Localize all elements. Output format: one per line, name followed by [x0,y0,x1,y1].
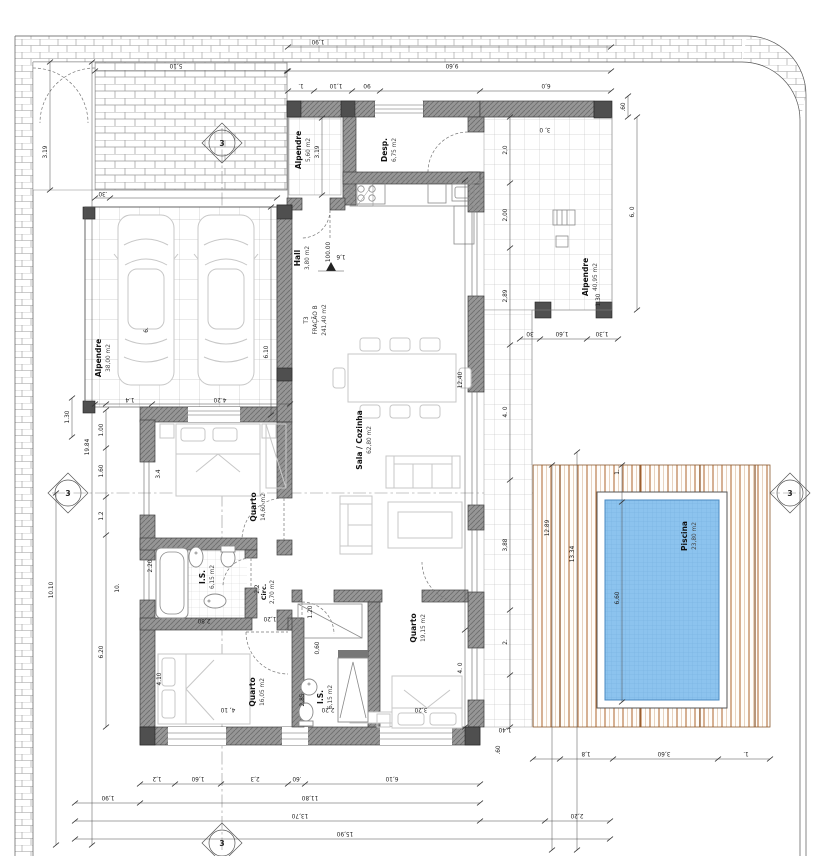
toilet-is1 [221,546,235,567]
dim-bottom-row1: 1,2 1,60 2,3 .60 6,10 [137,775,483,786]
carport-area: 38,00 m2 [106,344,112,372]
dim-bottom-row2: 1,90 11,80 [72,794,483,805]
dim-is2-120: 1.20 [308,605,314,618]
svg-text:90: 90 [363,82,371,88]
dim-is2-220: 2,20 [321,706,334,712]
desp-door-arc-east [428,132,468,172]
carport-name: Alpendre [94,339,103,377]
washbasin-is2 [301,679,317,695]
section-marker-left: 3 [65,489,70,498]
dim-alp40-right: 6, 0 [630,115,640,313]
dim-sala-height: 12,40 4. 0 [458,178,468,730]
dim-p-140: 1,40 [498,726,511,732]
dim-q3-320: 3,20 [414,706,427,712]
svg-text:6,0: 6,0 [541,82,551,88]
dim-alp40-130: 1,30 [596,293,602,306]
backporch-name: Alpendre [581,258,590,296]
svg-text:10.10: 10.10 [49,581,55,598]
bed-quarto2 [158,654,250,724]
front-door-arc [302,210,330,238]
svg-text:6,10: 6,10 [385,775,398,781]
sala-area: 62,80 m2 [367,426,373,454]
svg-text:1,60: 1,60 [555,330,568,336]
bidet-is1 [204,594,226,608]
level-value: 100.00 [326,242,332,263]
quarto2-door-arc [246,632,288,674]
svg-text:4. 0: 4. 0 [503,406,509,417]
svg-text:19.84: 19.84 [85,438,91,455]
quarto1-area: 14,60 m2 [261,493,267,521]
pool-area: 23,80 m2 [692,522,698,550]
svg-text:1.2: 1.2 [99,511,105,521]
washbasin-is1 [189,547,203,567]
svg-text:2,3: 2,3 [250,775,260,781]
dim-is2-060: 0,60 [315,641,321,654]
is2-name: I.S. [316,690,325,704]
pool-deck: Piscina 23,80 m2 [533,465,770,727]
unit-line1: T3 [304,316,310,325]
dim-hall-16: 1,6 [336,253,346,259]
svg-text:1,10: 1,10 [329,82,342,88]
sofa-large [386,456,460,488]
svg-text:1,60: 1,60 [191,775,204,781]
window-top [375,101,423,117]
dim-c-22: 2,2 [255,584,261,594]
window-carport-wall [188,407,240,422]
svg-text:1,30: 1,30 [595,330,608,336]
hall-area: 3,80 m2 [305,246,311,270]
svg-text:2.: 2. [503,639,509,645]
svg-text:1,90: 1,90 [311,38,324,44]
dim-bottom-row4: 15,90 [72,830,613,841]
quarto2-area: 16,05 m2 [260,678,266,706]
svg-text:15,90: 15,90 [336,830,353,836]
quarto1-name: Quarto [249,492,258,521]
svg-text:11,80: 11,80 [301,794,318,800]
svg-text:1.60: 1.60 [99,464,105,477]
dim-q1-34: 3.4 [156,469,162,479]
svg-text:2,0: 2,0 [503,145,509,155]
hall-name: Hall [293,250,302,266]
section-marker-right: 3 [787,489,792,498]
bed-quarto1 [160,424,276,496]
driveway [33,62,95,190]
sidewalk-corner [742,36,806,120]
dim-is2-285: 2,85 [300,693,306,706]
svg-text:3.19: 3.19 [315,145,321,158]
is2-area: 6,15 m2 [328,685,334,709]
sofa-small [340,496,372,554]
svg-text:9,60: 9,60 [445,62,458,68]
pool-name: Piscina [680,521,689,551]
bed-quarto3 [377,676,462,728]
svg-text:2,89: 2,89 [503,289,509,302]
svg-text:3.19: 3.19 [43,145,49,158]
dim-is1-220: 2.20 [148,559,154,572]
dim-bottom-row3: 13,70 2,20 [72,812,613,823]
dim-left-10: 10. [115,583,121,592]
svg-text:.30: .30 [98,190,108,196]
car-1 [114,215,178,385]
svg-text:1.: 1. [615,469,621,475]
desp-area: 6,75 m2 [392,138,398,162]
svg-text:12,40: 12,40 [458,371,464,388]
unit-line3: 241,40 m2 [322,304,328,336]
svg-text:.60: .60 [292,775,302,781]
kitchen [350,180,480,244]
porch-name: Alpendre [294,131,303,169]
unit-line2: FRAÇÃO B [312,305,319,334]
svg-text:3,88: 3,88 [503,538,509,551]
floor-plan-drawing: Piscina 23,80 m2 [0,0,816,856]
svg-text:1,8: 1,8 [581,750,591,756]
section-marker-bottom: 3 [219,839,224,848]
window-west-1 [144,462,149,515]
svg-text:1,90: 1,90 [101,794,114,800]
dim-alp40-col: .60 [621,94,631,120]
rug [388,502,462,548]
dining-set [333,338,471,418]
svg-text:1.00: 1.00 [99,423,105,436]
porch-area: 5,60 m2 [306,138,312,162]
window-q2 [168,727,226,745]
svg-text:4. 0: 4. 0 [458,662,464,673]
dim-porch-row: 30 1,60 1,30 [517,330,621,341]
dim-carport-top: .30 [92,190,280,200]
dim-top-total: 9,60 [285,62,614,73]
dim-alp40-inner: 3, 0 [539,126,550,132]
svg-text:13.34: 13.34 [570,545,576,562]
backporch-area: 40,95 m2 [593,263,599,291]
svg-text:6, 0: 6, 0 [630,206,636,217]
dim-top-segments: 1. 1,10 90 6,0 [285,82,614,93]
window-is [282,727,308,745]
is2-door-arc [302,602,334,634]
svg-text:5,10: 5,10 [169,62,182,68]
is1-name: I.S. [198,570,207,584]
dim-p-60: .60 [496,745,502,755]
svg-text:30: 30 [526,330,534,336]
svg-text:1.: 1. [298,82,304,88]
is1-area: 6,15 m2 [210,565,216,589]
window-q3 [380,727,452,745]
svg-text:6.10: 6.10 [264,345,270,358]
sala-name: Sala / Cozinha [355,410,364,469]
quarto3-name: Quarto [409,613,418,642]
dim-q2-410v: 4.10 [157,672,163,685]
car-2 [194,215,258,385]
svg-text:1.30: 1.30 [65,410,71,423]
circ-name: Circ. [260,584,268,601]
quarto3-area: 19,15 m2 [421,614,427,642]
shower-is2 [338,650,368,722]
paved-forecourt [95,62,287,190]
desp-name: Desp. [380,138,389,162]
dim-left-130: 1.30 [65,396,75,440]
dim-left-1010: 10.10 [49,491,59,848]
dim-q2-410h: 4, 10 [220,706,235,712]
svg-text:3,60: 3,60 [657,750,670,756]
floor-plan-page: Piscina 23,80 m2 [0,0,816,856]
side-walkway-tiles [484,310,532,727]
svg-text:.60: .60 [621,102,627,112]
section-marker-top: 3 [219,139,224,148]
sidewalk-left [15,62,33,856]
svg-text:2,00: 2,00 [503,208,509,221]
dim-q2-280: 2,80 [197,617,210,623]
svg-text:2,20: 2,20 [570,812,583,818]
circ-area: 2,70 m2 [270,580,276,604]
svg-text:1.4: 1.4 [125,396,135,402]
bathtub [156,548,188,618]
dim-deck-bottom: 1,8 3,60 1. [530,750,773,761]
svg-text:1.: 1. [743,750,749,756]
sidewalk-top [15,36,742,62]
dim-left-6: 6. [144,327,150,333]
svg-text:4.20: 4.20 [213,396,226,402]
quarto2-name: Quarto [248,677,257,706]
svg-text:6,60: 6,60 [615,591,621,604]
unit-label: T3 FRAÇÃO B 241,40 m2 [304,304,328,336]
svg-text:6.20: 6.20 [99,645,105,658]
svg-text:12.89: 12.89 [545,519,551,536]
dim-c-120: 1,20 [263,615,276,621]
svg-text:13,70: 13,70 [291,812,308,818]
dim-left-chain: 1.00 1.60 1.2 6.20 [99,408,109,730]
svg-text:1,2: 1,2 [152,775,162,781]
